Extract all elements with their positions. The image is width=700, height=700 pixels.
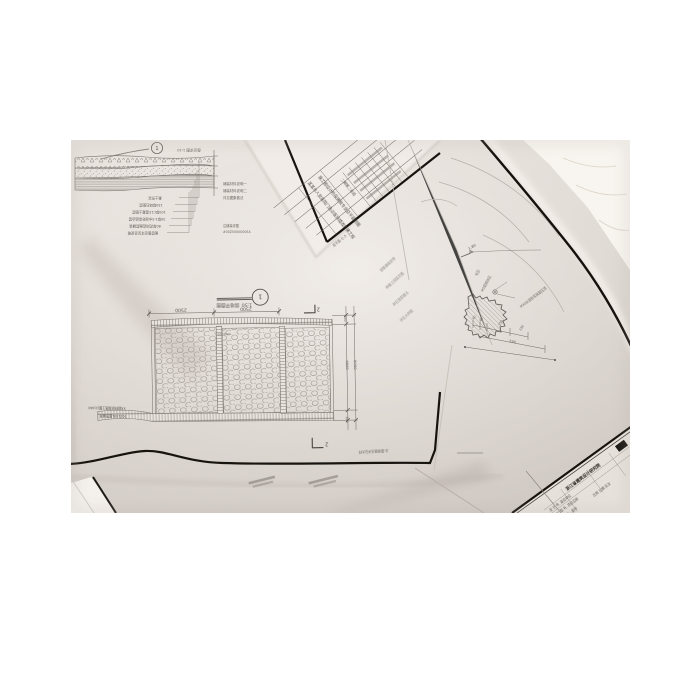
svg-text:铺装材料说明一: 铺装材料说明一	[223, 181, 247, 186]
plan-detail-number: 1	[258, 293, 262, 300]
svg-text:面层做法详见总说明: 面层做法详见总说明	[127, 231, 158, 236]
svg-text:100厚C15混凝土垫层: 100厚C15混凝土垫层	[132, 210, 166, 215]
svg-text:100: 100	[343, 315, 347, 322]
svg-text:60厚花岗岩面层铺装: 60厚花岗岩面层铺装	[129, 224, 161, 229]
plan-panel-3	[285, 327, 330, 413]
svg-text:30厚1:3水泥砂浆结合层: 30厚1:3水泥砂浆结合层	[128, 217, 166, 222]
svg-text:100: 100	[345, 416, 349, 423]
svg-text:2: 2	[325, 440, 328, 446]
svg-text:2: 2	[317, 306, 320, 312]
svg-text:注铺装详图: 注铺装详图	[223, 223, 239, 228]
svg-text:150厚碎石垫层: 150厚碎石垫层	[139, 203, 163, 208]
plan-rebar-note: Ø6@200	[217, 332, 230, 337]
svg-text:素土夯实: 素土夯实	[148, 196, 162, 201]
svg-text:铺装材料说明二: 铺装材料说明二	[223, 188, 247, 193]
svg-text:2500: 2500	[240, 305, 252, 311]
plan-panel-1	[155, 327, 217, 413]
svg-text:#00Z5000U005A: #00Z5000U005A	[223, 230, 251, 234]
svg-text:XX园林景观施工图(2)0A0: XX园林景观施工图(2)0A0	[88, 406, 126, 412]
svg-text:2500: 2500	[175, 307, 187, 313]
blueprints-photo: 1 做法详图 1:10 素土夯实 150厚碎石垫层 100厚C15混凝土垫层 3…	[71, 140, 630, 513]
svg-text:5000: 5000	[353, 360, 358, 370]
svg-text:4800: 4800	[345, 360, 350, 370]
svg-text:详见图集做法: 详见图集做法	[223, 195, 244, 200]
section-caption: 做法详图 1:10	[176, 148, 200, 153]
svg-text:50Z1001图签编号: 50Z1001图签编号	[99, 414, 126, 419]
dim-dot-2	[554, 359, 556, 361]
dim-dot-1	[464, 346, 466, 348]
photo-scene: 1 做法详图 1:10 素土夯实 150厚碎石垫层 100厚C15混凝土垫层 3…	[71, 140, 630, 513]
plan-panel-2	[222, 327, 280, 413]
page: { "plan": { "title": "围墙平面图", "scale": "…	[0, 0, 700, 700]
